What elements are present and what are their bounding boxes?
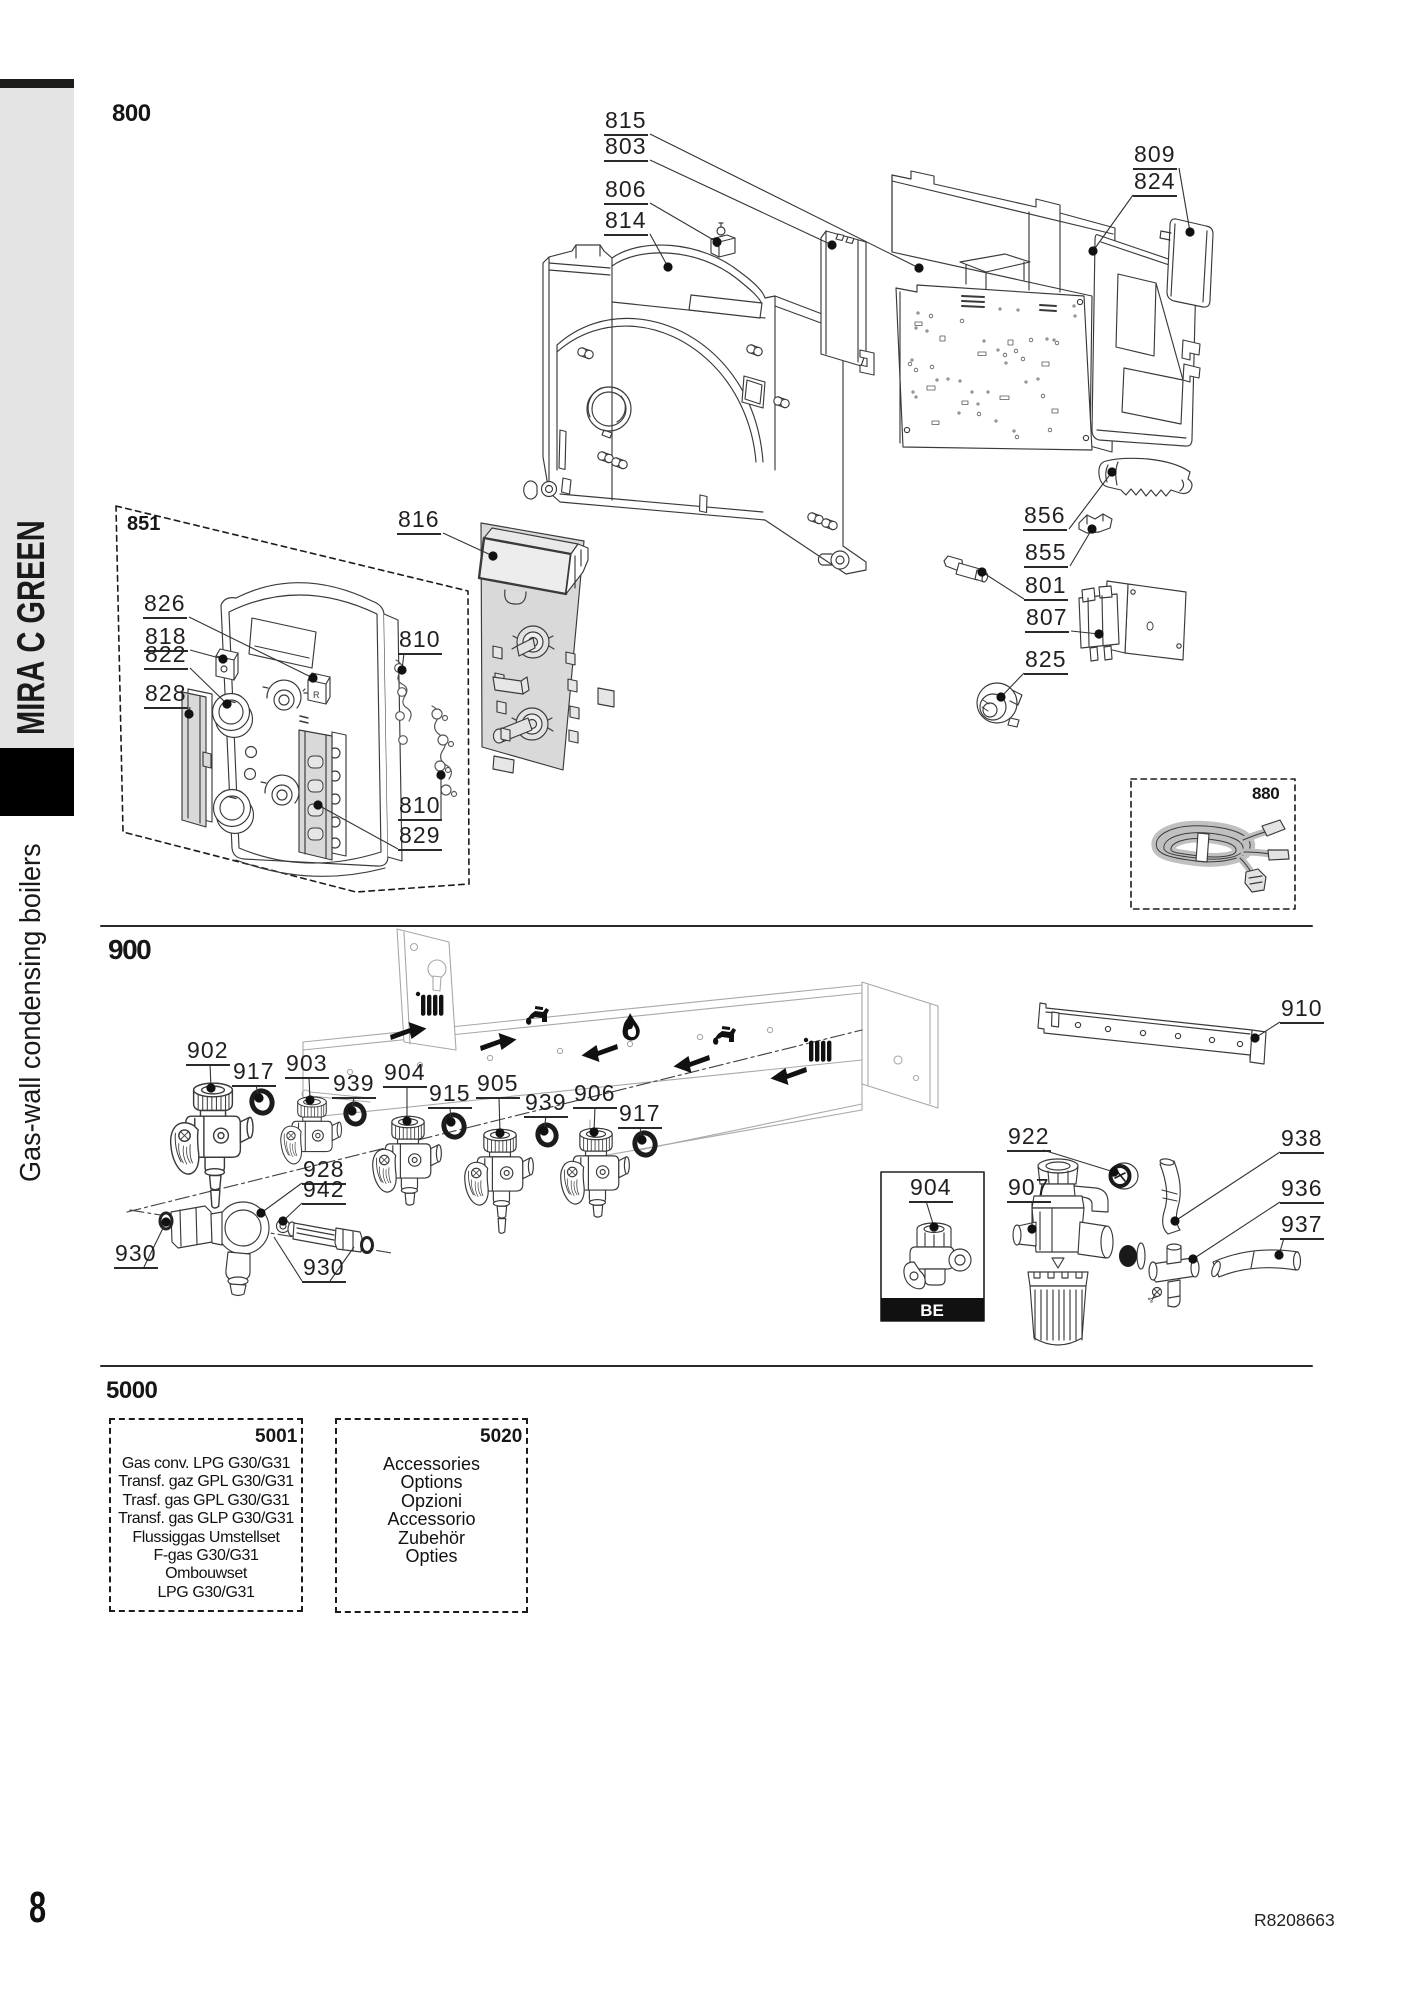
svg-text:BE: BE [920, 1301, 944, 1320]
svg-text:R: R [313, 690, 320, 700]
